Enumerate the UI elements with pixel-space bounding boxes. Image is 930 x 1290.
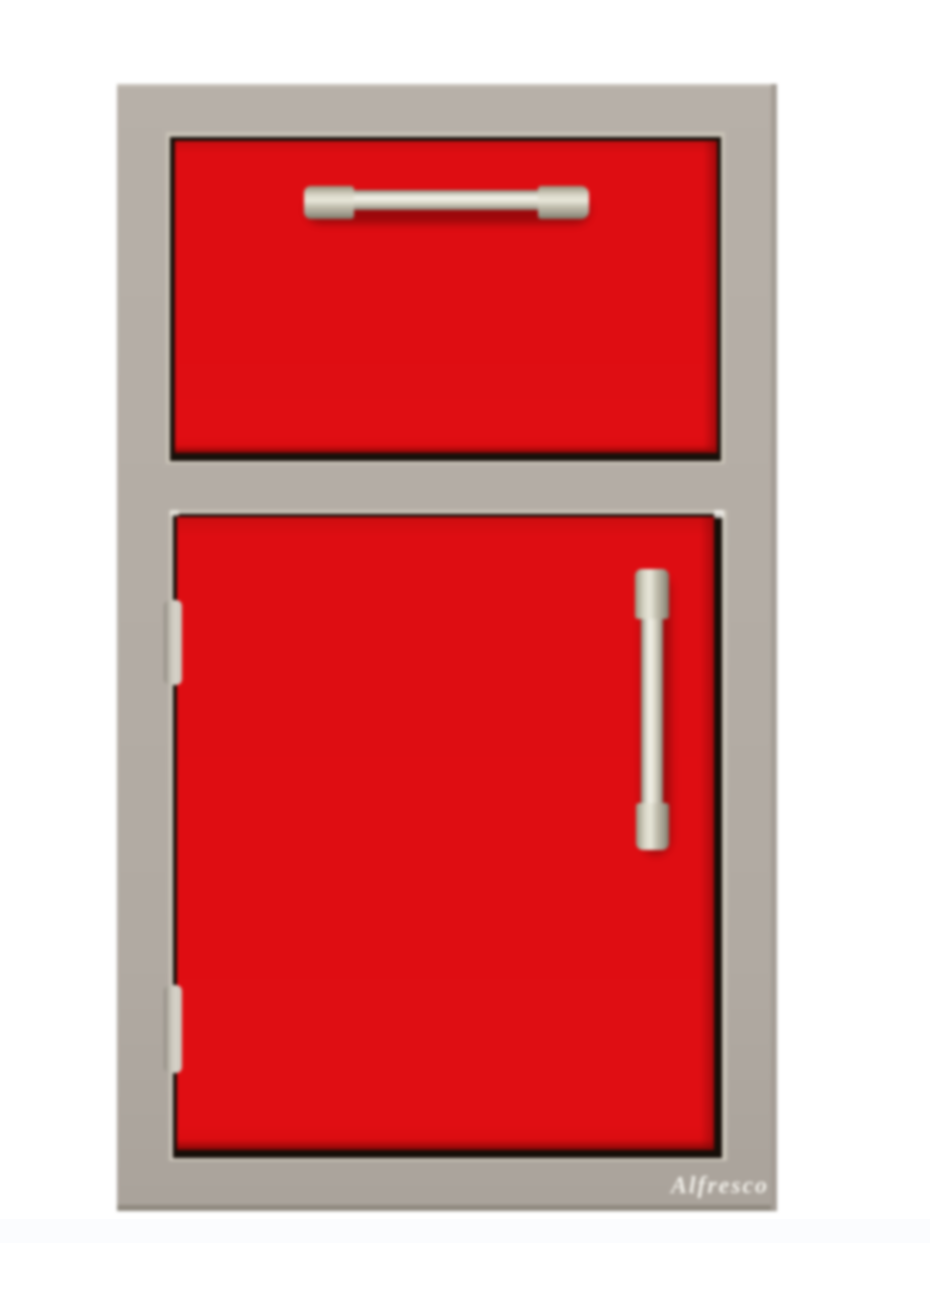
- svg-text:Alfresco: Alfresco: [669, 1173, 767, 1199]
